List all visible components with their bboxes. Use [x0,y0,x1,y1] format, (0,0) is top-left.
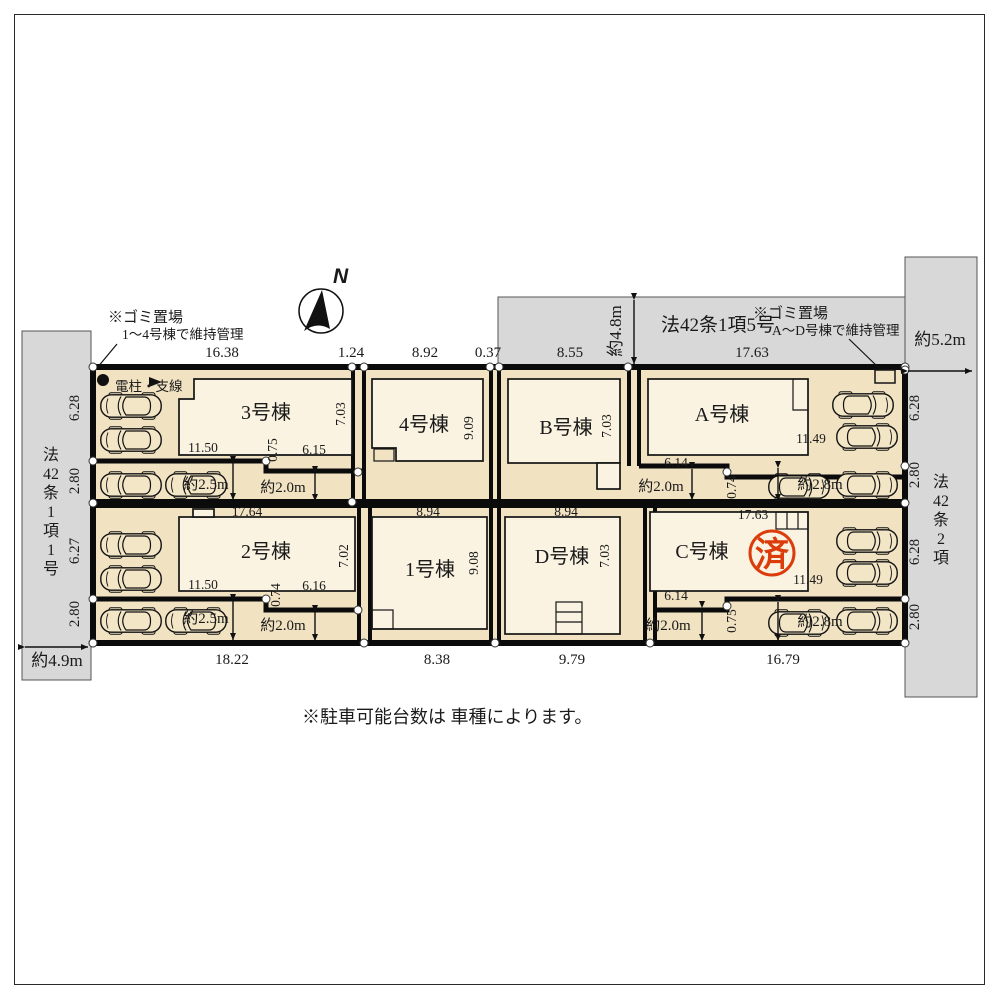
garbage-note-west: ※ゴミ置場 1～4号棟で維持管理 [108,308,244,342]
dim-left-4: 2.80 [67,601,83,627]
car-icon [833,392,893,418]
garbage-note-west-line1: ※ゴミ置場 [108,308,183,326]
building-B-dim-right: 7.03 [599,414,614,438]
dim-right-3: 6.28 [907,539,923,565]
site-plan-page: 16.38 1.24 8.92 0.37 8.55 17.63 18.22 8.… [0,0,1000,1000]
building-D-dim-top: 8.94 [554,504,578,519]
parking-note: ※駐車可能台数は 車種によります。 [302,707,592,727]
compass-north-label: N [333,265,349,288]
utility-pole-icon [97,374,109,386]
dim-top-4: 0.37 [475,345,502,361]
building-A-label: A号棟 [695,403,749,426]
bottom-dimensions: 18.22 8.38 9.79 16.79 [215,652,800,668]
road-right-name-char: 42 [933,493,949,510]
building-2-label: 2号棟 [241,540,291,563]
road-left-name-char: 項 [43,523,59,540]
road-left-name-char: 1 [47,504,55,521]
driveway-sw-width-2: 約2.0m [260,617,306,634]
building-C-dim-top: 17.63 [738,507,769,522]
car-icon [101,472,161,498]
driveway-nw-width-1: 約2.5m [183,476,229,493]
dim-top-6: 17.63 [735,345,769,361]
car-icon [101,393,161,419]
car-icon [837,424,897,450]
site-plan-drawing: 16.38 1.24 8.92 0.37 8.55 17.63 18.22 8.… [0,0,1000,1000]
road-right-name-char: 法 [933,473,949,491]
driveway-sw-width-1: 約2.5m [183,610,229,627]
building-3-dim-step: 0.75 [265,438,280,462]
car-icon [837,472,897,498]
building-1-dim-top: 8.94 [416,504,440,519]
dim-top-5: 8.55 [557,345,583,361]
car-icon [837,608,897,634]
building-C-dim-bl: 6.14 [664,588,688,603]
garbage-note-east-line2: A～D号棟で維持管理 [772,323,900,338]
driveway-nw-width-2: 約2.0m [260,479,306,496]
dim-bottom-3: 9.79 [559,652,585,668]
sold-stamp-text: 済 [755,536,790,574]
building-1-label: 1号棟 [405,558,455,581]
road-right-width: 約5.2m [914,330,965,349]
road-top-width: 約4.8m [606,305,625,356]
building-A-dim-br: 11.49 [796,431,826,446]
car-icon [837,560,897,586]
road-right-name-char: 2 [937,531,945,548]
garbage-box-east [875,370,895,383]
building-4-label: 4号棟 [399,413,449,436]
driveway-se-width-2: 約2.8m [797,613,843,630]
building-3-label: 3号棟 [241,401,291,424]
dim-left-1: 6.28 [67,395,83,421]
building-4-dim-right: 9.09 [461,416,476,440]
road-left-name-char: 条 [43,484,59,502]
dim-left-2: 2.80 [67,468,83,494]
driveway-ne-width-1: 約2.0m [638,478,684,495]
dim-bottom-2: 8.38 [424,652,450,668]
road-right-name-char: 項 [933,550,949,567]
dim-bottom-1: 18.22 [215,652,249,668]
road-left-name-char: 号 [43,560,59,578]
building-2-dim-bl: 11.50 [188,577,218,592]
road-left-name-char: 法 [43,446,59,464]
building-B-label: B号棟 [539,416,592,439]
garbage-note-east-line1: ※ゴミ置場 [753,304,828,322]
driveway-se-width-1: 約2.0m [645,617,691,634]
road-left-name-char: 1 [47,542,55,559]
road-right-name: 法 42 条 2 項 [933,473,949,567]
building-C-dim-br: 11.49 [793,572,823,587]
building-3-dim-br: 6.15 [302,442,326,457]
building-C-dim-step: 0.75 [724,609,739,633]
dim-left-3: 6.27 [67,537,83,564]
building-2-dim-right: 7.02 [336,544,351,568]
garbage-note-west-line2: 1～4号棟で維持管理 [122,327,244,342]
dim-right-2: 2.80 [907,462,923,488]
building-3-dim-right: 7.03 [333,402,348,426]
car-icon [101,566,161,592]
dim-top-1: 16.38 [205,345,239,361]
dim-right-1: 6.28 [907,395,923,421]
car-icon [101,608,161,634]
sold-stamp: 済 [750,531,794,575]
car-icon [837,528,897,554]
road-left-name-char: 42 [43,466,59,483]
building-D-dim-right: 7.03 [597,544,612,568]
building-2-dim-br: 6.16 [302,578,326,593]
building-2-dim-top: 17.64 [232,504,263,519]
building-A-dim-step: 0.74 [724,475,739,499]
building-C-label: C号棟 [675,540,728,563]
building-D-label: D号棟 [535,545,589,568]
building-D-shape [505,517,620,634]
building-A-dim-bl: 6.14 [664,455,688,470]
building-B-annotations: B号棟 7.03 [539,414,614,439]
compass-icon: N [299,265,349,333]
car-icon [101,532,161,558]
building-1-dim-right: 9.08 [466,551,481,575]
dim-top-2: 1.24 [338,345,365,361]
dim-top-3: 8.92 [412,345,438,361]
road-right-name-char: 条 [933,511,949,529]
building-4-annotations: 4号棟 9.09 [399,413,476,440]
driveway-ne-width-2: 約2.8m [797,476,843,493]
dim-right-4: 2.80 [907,604,923,630]
building-3-dim-bl: 11.50 [188,440,218,455]
car-icon [101,427,161,453]
building-2-dim-step: 0.74 [268,583,283,607]
road-left-width: 約4.9m [31,651,82,670]
utility-pole-label: 電柱・支線 [115,379,183,394]
dim-bottom-4: 16.79 [766,652,800,668]
